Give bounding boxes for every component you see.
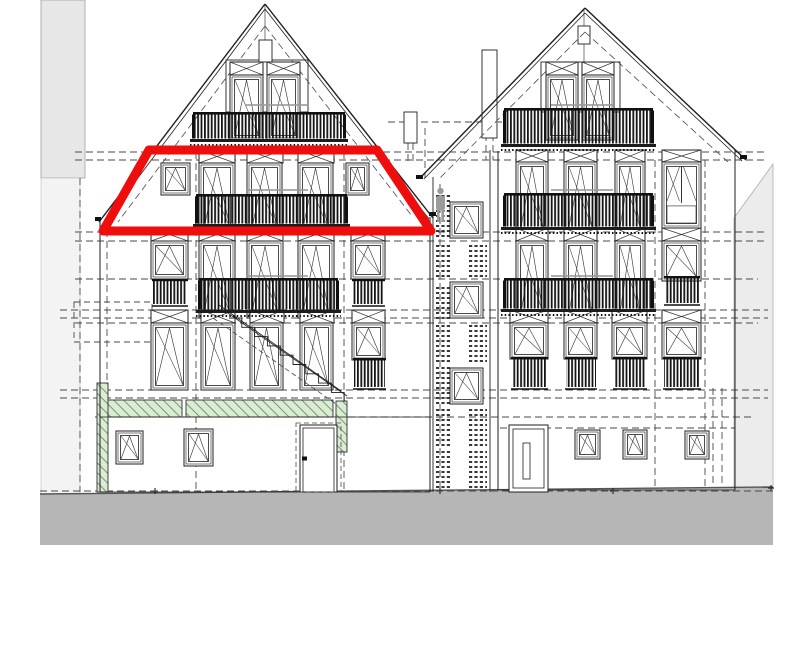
window (450, 202, 483, 238)
window (116, 431, 143, 464)
transom-panel (151, 310, 188, 323)
window (184, 429, 213, 466)
transom-panel (662, 228, 701, 241)
transom-panel (615, 150, 645, 162)
window (623, 430, 647, 459)
balcony-railing (196, 278, 341, 316)
window (575, 430, 600, 459)
stair-treads (436, 196, 487, 487)
window (450, 368, 483, 404)
balcony-railing (193, 194, 350, 230)
window (352, 323, 385, 360)
window (612, 323, 647, 359)
window (151, 241, 188, 279)
transom-panel (516, 150, 548, 162)
transom-panel (662, 310, 701, 323)
elevation-drawing (0, 0, 809, 652)
juliet-railing (613, 357, 647, 389)
window (662, 162, 701, 228)
elevation-svg (0, 0, 809, 652)
juliet-railing (353, 358, 386, 389)
entrance-door (509, 425, 548, 492)
entrance-door (296, 423, 341, 492)
window (346, 163, 369, 195)
transom-panel (352, 310, 385, 323)
ground (40, 485, 774, 545)
balcony-railing (501, 278, 656, 315)
balcony-railing (501, 108, 656, 150)
window (300, 323, 333, 390)
transom-panel (267, 62, 300, 75)
juliet-railing (664, 276, 700, 305)
juliet-railing (511, 357, 548, 389)
transom-panel (662, 150, 701, 162)
balcony-railing (190, 112, 348, 145)
transom-panel (582, 62, 614, 75)
juliet-railing (565, 357, 597, 389)
window (662, 323, 701, 359)
window (564, 323, 597, 359)
right-neighbor-building (734, 164, 773, 489)
window (685, 431, 709, 459)
transom-panel (564, 150, 597, 162)
transom-panel (230, 62, 263, 75)
window (201, 323, 235, 390)
juliet-railing (152, 279, 188, 306)
juliet-railing (352, 279, 385, 306)
window (450, 282, 483, 318)
window (662, 241, 701, 281)
balcony-railing (501, 193, 656, 233)
window (351, 241, 385, 279)
left-neighbor-building (41, 0, 85, 494)
window (151, 323, 188, 390)
window (510, 323, 548, 359)
transom-panel (546, 62, 578, 75)
person-figure (436, 188, 445, 222)
juliet-railing (663, 357, 701, 389)
window (161, 163, 190, 195)
